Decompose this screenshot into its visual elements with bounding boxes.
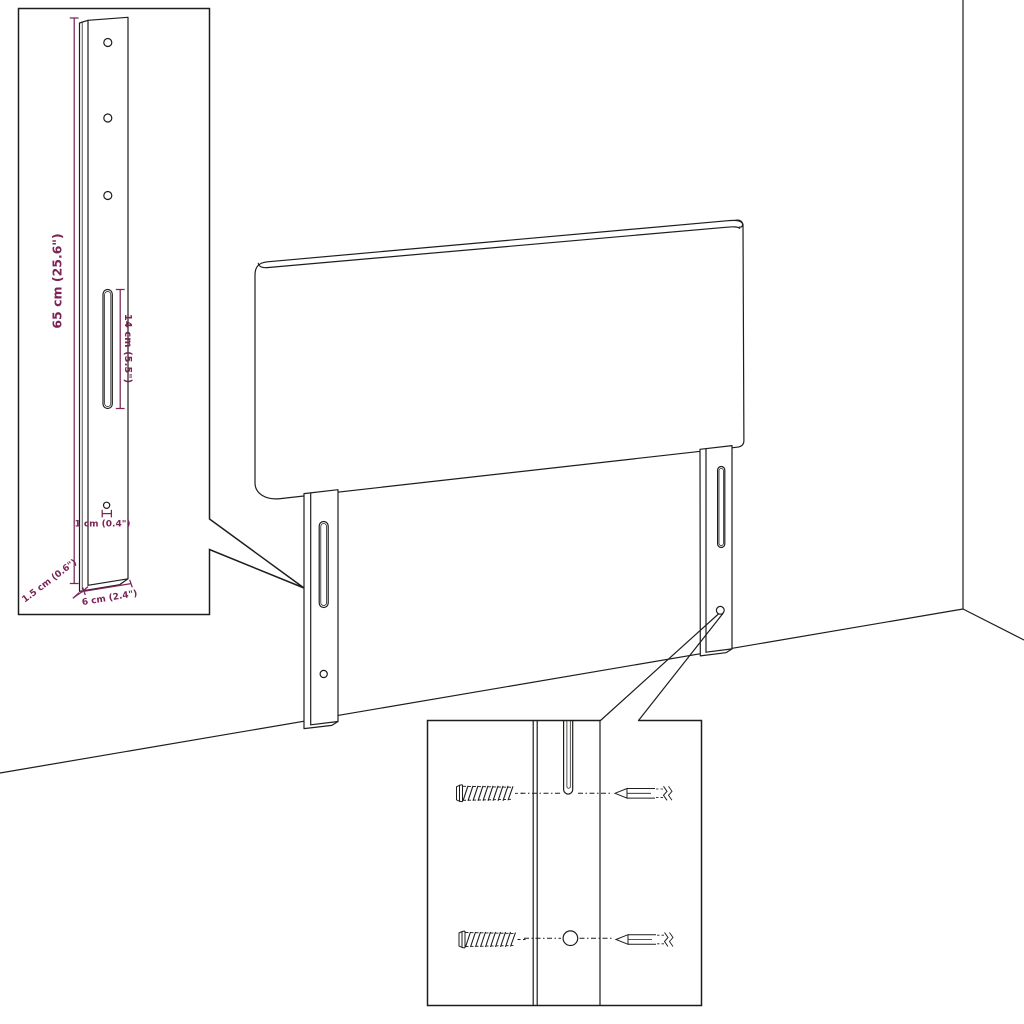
slot-detail xyxy=(564,721,573,794)
product-diagram-canvas: 65 cm (25.6") 14 cm (5.5") 1 cm (0.4") 1… xyxy=(0,0,1024,1024)
screw-icon xyxy=(459,931,526,948)
height-dimension-label: 65 cm (25.6") xyxy=(50,233,65,328)
right-mounting-leg xyxy=(700,446,732,656)
leg-cross-section xyxy=(533,721,600,1005)
left-mounting-leg xyxy=(304,490,338,729)
slot-detail-inner xyxy=(567,721,570,788)
leg-detail-hole-1 xyxy=(104,39,112,47)
left-leg-hole xyxy=(320,670,327,677)
hole-detail xyxy=(563,931,578,946)
floor-line-right xyxy=(963,609,1024,640)
screw-icon xyxy=(457,785,524,802)
leg-detail-hole-3 xyxy=(104,192,112,200)
slot-dimension-label: 14 cm (5.5") xyxy=(122,314,133,383)
floor-line-left xyxy=(0,609,963,773)
wall-plug-icon xyxy=(616,933,673,947)
leg-detail-small-hole xyxy=(104,502,110,508)
wall-plug-icon xyxy=(615,786,672,800)
hole-dimension-label: 1 cm (0.4") xyxy=(74,520,130,530)
leg-detail-hole-2 xyxy=(104,114,112,122)
right-leg-outline xyxy=(700,446,732,656)
callout-line-right xyxy=(639,614,723,721)
hardware-detail-inset xyxy=(428,721,702,1006)
hardware-inset-border xyxy=(428,721,702,1006)
headboard-panel xyxy=(255,220,744,499)
